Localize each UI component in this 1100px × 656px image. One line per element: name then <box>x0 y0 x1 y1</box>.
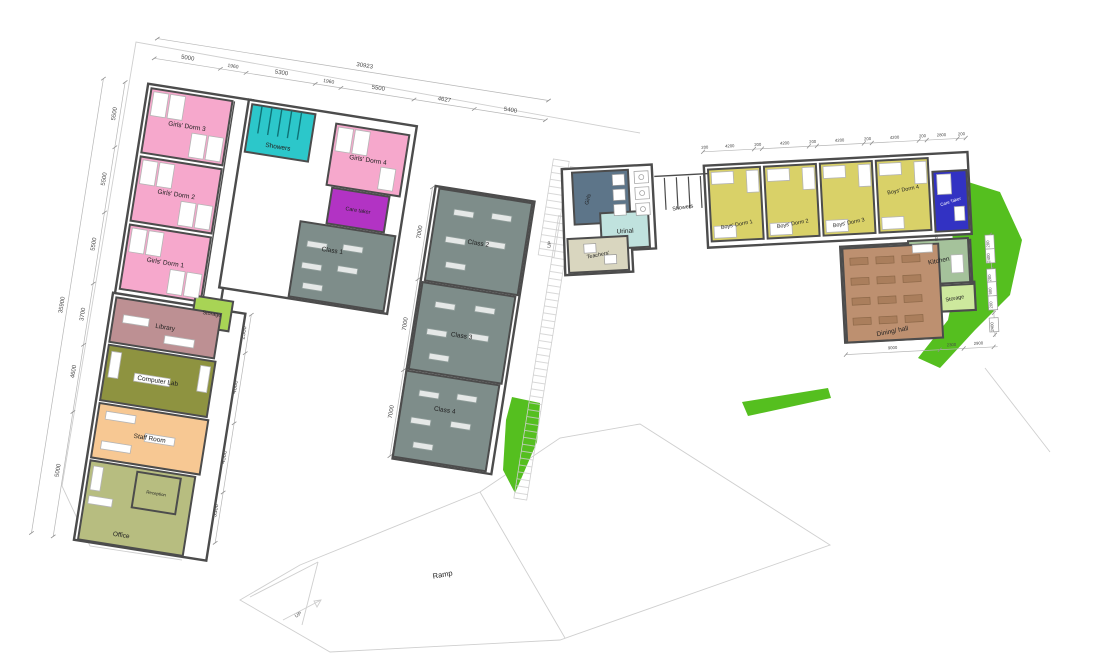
ramp-label: Ramp <box>432 568 453 580</box>
dim-left-3: 5500 <box>90 237 98 252</box>
dim-top-2: 1960 <box>227 63 239 71</box>
dim-boys-3: 200 <box>754 142 762 147</box>
label-boys-showers: Showers <box>672 203 694 212</box>
svg-text:200: 200 <box>985 240 990 248</box>
right-complex: 200 4200 200 4200 200 4200 200 4200 200 … <box>559 130 1000 371</box>
dim-top-6: 4627 <box>437 96 452 104</box>
room-girls-showers <box>245 104 316 161</box>
svg-text:2400: 2400 <box>986 253 992 263</box>
svg-text:200: 200 <box>987 274 992 282</box>
svg-text:900: 900 <box>988 287 993 295</box>
dim-care-taker-door: 900 <box>934 233 939 241</box>
label-urinal: Urinal <box>616 228 634 236</box>
dim-boys-2: 4200 <box>725 143 735 149</box>
dim-top-3: 5300 <box>274 69 289 77</box>
dim-dining-1: 9000 <box>888 345 898 351</box>
dim-boys-6: 4200 <box>835 137 845 143</box>
dim-dining-2: 2300 <box>947 342 957 348</box>
dim-boys-7: 200 <box>864 136 872 141</box>
dim-left-5: 4600 <box>70 364 78 379</box>
dim-left-1: 5500 <box>111 106 119 121</box>
dim-boys-1: 200 <box>701 145 709 150</box>
dim-boys-4: 4200 <box>780 140 790 146</box>
left-complex: 30923 5000 1960 5300 1960 5500 4627 5400… <box>23 22 656 621</box>
dim-boys-5: 200 <box>809 139 817 144</box>
floor-plan-page: Ramp UP 30923 5000 1960 5300 1960 5500 4… <box>0 0 1100 656</box>
svg-text:200: 200 <box>988 301 993 309</box>
ramp-up-label: UP <box>294 610 304 619</box>
dim-left-4: 3700 <box>79 307 87 322</box>
dim-top-5: 5500 <box>371 85 386 93</box>
dim-left-2: 5500 <box>101 171 109 186</box>
dim-dining-3: 2900 <box>974 340 984 346</box>
dim-class4-height: 7000 <box>388 404 396 419</box>
floor-plan-svg: Ramp UP 30923 5000 1960 5300 1960 5500 4… <box>0 0 1100 656</box>
dim-left-total: 35900 <box>58 296 67 314</box>
dim-class2-height: 7000 <box>416 224 424 239</box>
dim-boys-8: 4200 <box>890 134 900 140</box>
green-area-mid <box>742 388 831 416</box>
dim-top-7: 5400 <box>503 107 518 115</box>
dim-top-4: 1960 <box>323 78 335 86</box>
dim-class3-height: 7000 <box>402 316 410 331</box>
dim-left-6: 5000 <box>55 463 63 478</box>
dim-boys-10: 2800 <box>937 132 947 138</box>
dim-boys-9: 200 <box>919 133 927 138</box>
dim-top-1: 5000 <box>181 55 196 63</box>
dim-boys-11: 200 <box>958 131 966 136</box>
svg-text:2400: 2400 <box>989 321 995 331</box>
room-class-4 <box>393 371 499 472</box>
dim-top-total: 30923 <box>356 62 374 71</box>
